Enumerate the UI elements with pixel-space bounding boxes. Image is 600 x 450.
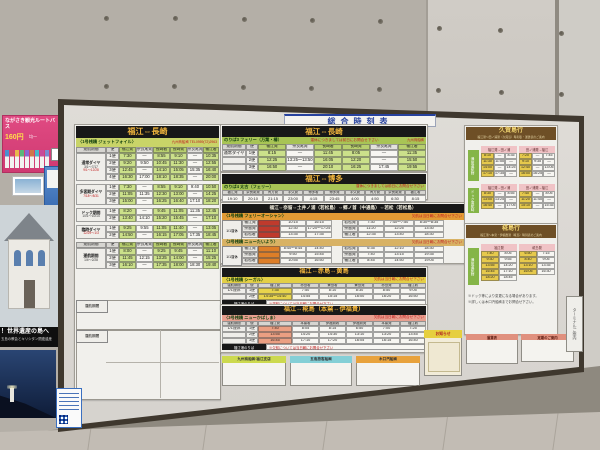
time-cell: 9:45 xyxy=(170,248,187,255)
bus-poster-mini-card xyxy=(20,150,24,168)
right-table-header: 福江発→田ノ浦 xyxy=(481,184,517,191)
time-cell: 10:50 xyxy=(203,184,219,191)
formtie-hole xyxy=(437,26,442,31)
time-cell: 8:55 xyxy=(153,153,170,160)
time-cell: 13:05 xyxy=(203,225,219,232)
time-cell: 8:05 xyxy=(342,150,370,157)
time-cell: 9:40 xyxy=(187,184,203,191)
time-cell: 8:45 xyxy=(358,258,384,264)
time-cell: 13:25 xyxy=(153,255,170,262)
time-cell: — xyxy=(136,262,153,269)
right-table-header: 田ノ浦発→福江 xyxy=(519,146,555,153)
pier-strip: 〈2号桟橋 ニューたいよう〉欠航は当日朝にお問合せ下さい xyxy=(222,239,464,246)
formtie-hole xyxy=(436,88,441,93)
pier-label: 〈1号桟橋 ジェットフォイル〉 xyxy=(78,140,136,144)
time-cell: 18:20 xyxy=(481,275,499,281)
time-cell: 18:30 xyxy=(414,232,444,238)
formtie-hole xyxy=(559,31,564,36)
bus-poster-mini-card xyxy=(30,150,34,168)
time-cell: 15:35 xyxy=(187,167,203,174)
formtie-hole xyxy=(559,92,564,97)
time-cell: 18:00 xyxy=(170,262,187,269)
cliff xyxy=(0,386,56,418)
time-cell: 8:20 xyxy=(119,208,136,215)
time-cell: 11:35 xyxy=(398,150,426,157)
time-cell: 15:25 xyxy=(203,255,219,262)
time-cell: 10:35 xyxy=(203,153,219,160)
time-cell: — xyxy=(505,171,517,177)
photo-card-image xyxy=(15,179,41,193)
church-window xyxy=(14,250,21,266)
bus-poster-price: 160円 xyxy=(5,132,24,142)
formtie-hole xyxy=(241,85,246,90)
warning-note: 運休につきましては前日にお問合せ下さい xyxy=(356,185,424,189)
time-cell: 14:25 xyxy=(203,191,219,198)
formtie-hole xyxy=(498,28,503,33)
time-cell: 2便 xyxy=(106,255,119,262)
time-cell: 12:45 xyxy=(119,167,136,174)
time-cell: 13:35 xyxy=(280,232,306,238)
formtie-hole xyxy=(242,17,247,22)
bus-poster-mini-card xyxy=(25,150,29,168)
time-cell: 17:45 xyxy=(370,164,398,171)
time-cell: 14:50 xyxy=(384,258,414,264)
time-cell: 13:00 xyxy=(170,191,187,198)
time-cell: 23:00 xyxy=(283,195,303,202)
time-cell: 18:30 xyxy=(187,262,203,269)
time-cell: 2便 xyxy=(106,215,119,222)
time-cell: 16:15 xyxy=(153,232,170,239)
time-cell: 通常ダイヤ xyxy=(222,150,246,157)
period-label-cell: 通常ダイヤ3/1～7/179/1～12/28 xyxy=(76,153,106,181)
time-cell: 12:55 xyxy=(203,160,219,167)
warning-note: 運休につきましては前日にお問合せ下さい xyxy=(310,139,378,143)
pier-label: 〈1号桟橋 フェリーオーシャン〉 xyxy=(224,214,286,218)
time-cell: 16:40 xyxy=(170,198,187,205)
time-cell: 3便 xyxy=(106,167,119,174)
time-cell: 14:00 xyxy=(170,255,187,262)
time-cell xyxy=(222,157,246,164)
formtie-hole xyxy=(172,84,177,89)
time-cell: — xyxy=(187,191,203,198)
right-table-header: 椛島発 xyxy=(519,244,555,251)
route-header-bar: 福江⇔長崎 xyxy=(222,126,426,137)
time-cell: 17:35 xyxy=(187,232,203,239)
period-label-cell: 多客期ダイヤ7/18～8/31 xyxy=(76,184,106,205)
time-cell: 8:15 xyxy=(258,150,286,157)
heritage-band-text: ！世界遺産の島へ xyxy=(1,329,57,336)
time-cell: 4:15 xyxy=(303,195,324,202)
time-cell: 15:10 xyxy=(519,203,532,209)
time-cell: 17:35 xyxy=(153,262,170,269)
notice-box-header: お知らせ xyxy=(424,330,462,338)
time-cell: 11:35 xyxy=(136,191,153,198)
time-cell: 8:55 xyxy=(153,184,170,191)
time-cell: 10:55 xyxy=(280,258,306,264)
time-cell: 11:40 xyxy=(170,225,187,232)
time-cell: — xyxy=(187,153,203,160)
right-poster-title: 久賀島行 xyxy=(499,128,523,135)
warning-note: 欠航は当日朝にお問合せ下さい xyxy=(412,215,462,219)
time-cell: 12:35 xyxy=(358,232,384,238)
time-cell: 17:00 xyxy=(136,174,153,181)
time-cell: 19:10 xyxy=(222,195,243,202)
time-cell: 17:10 xyxy=(187,198,203,205)
time-cell: 12:25 xyxy=(258,157,286,164)
formtie-hole xyxy=(499,90,504,95)
route-header-bar: 福江⇔赤島⇔黄島 xyxy=(222,268,426,277)
time-cell: — xyxy=(532,203,543,209)
time-cell: 15:50 xyxy=(398,157,426,164)
time-cell: 3便 xyxy=(106,198,119,205)
time-cell: — xyxy=(543,171,555,177)
time-cell: 11:10 xyxy=(203,248,219,255)
church-roof xyxy=(4,213,54,241)
time-cell: 15:35 xyxy=(543,203,555,209)
bus-poster-mini-card xyxy=(10,150,14,168)
warning-note: 欠航は当日朝にお問合せ下さい xyxy=(374,278,424,282)
time-cell xyxy=(258,232,280,238)
time-cell: 18:45 xyxy=(499,275,517,281)
time-cell: 14:50 xyxy=(119,232,136,239)
foot-label: 福江港のりば xyxy=(222,344,266,350)
time-cell: 15:05 xyxy=(170,167,187,174)
contact-label: 九州商船㈱ xyxy=(407,139,424,142)
time-cell: 1便 xyxy=(106,153,119,160)
notice-box-paper xyxy=(428,342,460,372)
time-cell: 19:40 xyxy=(203,262,219,269)
pier-label: 〈3号桟橋 ニューかばしま〉 xyxy=(224,316,278,320)
time-cell: — xyxy=(187,160,203,167)
time-cell: 17:10 xyxy=(203,215,219,222)
contact-label: 九州商船㈱ TEL0959(72)2963 xyxy=(172,141,217,144)
time-cell: 11:45 xyxy=(314,150,342,157)
time-cell: 11:05 xyxy=(119,191,136,198)
right-poster-header: 久賀島行福江港～田ノ浦港（久賀島）時刻表・運賃表のご案内 xyxy=(466,127,556,140)
church-facade xyxy=(8,239,50,309)
time-cell: 16:50 xyxy=(258,164,286,171)
time-cell: 12:15 xyxy=(136,255,153,262)
blank-table-label: 運航期間 xyxy=(76,330,108,343)
time-cell: 17:05 xyxy=(505,203,517,209)
time-cell: 1便 xyxy=(106,184,119,191)
time-cell: 11:30 xyxy=(170,160,187,167)
time-cell: 9:25 xyxy=(119,225,136,232)
church-window xyxy=(26,250,33,266)
suspension-label: 1/1運休 xyxy=(222,246,242,266)
note-line: ※詳しくは木口汽船㈱までお問合せ下さい。 xyxy=(468,298,556,304)
heritage-band-sub: 五島の教会とキリシタン関連遺産 xyxy=(1,336,57,341)
period-note-red: 9/1～12/28 xyxy=(83,169,99,172)
pier-strip: のりば3 フェリー（万葉・椿）運休につきましては前日にお問合せ下さい九州商船㈱ xyxy=(222,137,426,144)
time-cell: 2便 xyxy=(106,191,119,198)
time-cell: 8:15 xyxy=(405,195,426,202)
time-cell: 15:45 xyxy=(170,215,187,222)
formtie-hole xyxy=(309,86,314,91)
bus-poster-mini-card xyxy=(35,150,39,168)
formtie-hole xyxy=(377,87,382,92)
time-cell: — xyxy=(136,167,153,174)
right-poster-subtitle: 福江港～本窯・伊福貴港（椛島）時刻表のご案内 xyxy=(480,233,542,237)
time-cell: 7:30 xyxy=(119,184,136,191)
time-cell: 2便 xyxy=(106,160,119,167)
time-cell: 18:35 xyxy=(170,174,187,181)
notice-card-qr xyxy=(59,415,68,424)
time-cell: 9:10 xyxy=(170,184,187,191)
time-cell: — xyxy=(187,248,203,255)
formtie-hole xyxy=(104,84,109,89)
lighthouse xyxy=(10,388,14,402)
time-cell: — xyxy=(370,157,398,164)
time-cell: — xyxy=(136,232,153,239)
time-cell xyxy=(258,258,280,264)
time-cell: 2便 xyxy=(246,157,258,164)
time-cell: 12:30 xyxy=(153,191,170,198)
time-cell: 20:10 xyxy=(243,195,263,202)
time-cell: 18:10 xyxy=(153,174,170,181)
time-cell: 16:40 xyxy=(203,167,219,174)
time-cell: 13:40 xyxy=(119,215,136,222)
time-cell: 4:00 xyxy=(345,195,365,202)
warning-note: 欠航は当日朝にお問合せ下さい xyxy=(374,316,424,320)
vertical-label: ドック運航時 xyxy=(468,188,479,213)
period-note-red: 12/29～1/3 xyxy=(83,232,99,235)
time-cell: — xyxy=(136,208,153,215)
time-cell: 4:50 xyxy=(365,195,385,202)
time-cell: 16:30 xyxy=(119,174,136,181)
time-cell: 13:25～13:50 xyxy=(286,157,314,164)
time-cell: 13:40 xyxy=(384,232,414,238)
bus-poster-title: ながさき観光ルートバス xyxy=(5,119,59,131)
right-table-header: 田ノ浦発→福江 xyxy=(519,184,555,191)
pier-label: 〈2号桟橋 ニューたいよう〉 xyxy=(224,240,278,244)
period-note-red: 7/18～8/31 xyxy=(83,195,99,198)
time-cell: 福江着 xyxy=(342,258,358,264)
blank-table-label: 運航期間 xyxy=(76,300,108,313)
time-cell: — xyxy=(136,184,153,191)
time-cell: 11:05 xyxy=(153,225,170,232)
time-cell: 14:10 xyxy=(153,167,170,174)
pier-label: のりば4 太古（フェリー） xyxy=(224,185,274,189)
suspension-label: 1/1運休 xyxy=(222,220,242,240)
formtie-hole xyxy=(173,16,178,21)
time-cell: 17:35 xyxy=(306,232,332,238)
photo-card xyxy=(12,176,44,196)
bus-route-poster: ながさき観光ルートバス 160円 均一 xyxy=(2,115,60,173)
route-header-bar: 福江⇔椛島（本窯⇔伊福貴） xyxy=(222,306,426,315)
ferry-terminal-photo: ながさき観光ルートバス 160円 均一 ！世界遺産の島へ 五島の教会とキリシタン… xyxy=(0,0,600,450)
route-header-bar: 福江⇔長崎 xyxy=(76,126,219,138)
time-cell: 1便 xyxy=(106,208,119,215)
period-label-cell: 運航期間1/4～2/28 xyxy=(76,248,106,269)
vertical-label: 通常運航時 xyxy=(468,150,479,181)
company-box-header: 九州商船㈱ 福江支店 xyxy=(222,356,286,363)
time-cell: 11:45 xyxy=(119,255,136,262)
time-cell: — xyxy=(187,215,203,222)
time-cell: 4便 xyxy=(106,174,119,181)
time-cell: 12:20 xyxy=(342,157,370,164)
time-cell: — xyxy=(187,225,203,232)
notice-card-lines xyxy=(59,393,79,411)
route-header-bar: 福江⇔博多 xyxy=(222,174,426,184)
time-cell: 9:20 xyxy=(119,160,136,167)
time-cell: — xyxy=(494,203,505,209)
formtie-hole xyxy=(378,19,383,24)
time-cell: 7:30 xyxy=(119,153,136,160)
bus-poster-mini-card xyxy=(5,150,9,168)
time-cell: 14:10 xyxy=(136,215,153,222)
warning-note: 欠航は当日朝にお問合せ下さい xyxy=(412,241,462,245)
right-bottom-box-header: 運賃表 xyxy=(466,334,518,340)
time-cell: 8:00 xyxy=(119,248,136,255)
vertical-label: 通常運航時 xyxy=(468,248,479,285)
right-poster-header: 椛島行福江港～本窯・伊福貴港（椛島）時刻表のご案内 xyxy=(466,225,556,238)
lighthouse-light xyxy=(7,385,17,389)
time-cell: 17:10 xyxy=(481,171,494,177)
wall-notice-text: ターミナルご案内 xyxy=(572,308,578,340)
time-cell: 12:45 xyxy=(203,208,219,215)
time-cell: 9:10 xyxy=(170,153,187,160)
time-cell: 9:50 xyxy=(136,160,153,167)
right-table-header: 福江発→田ノ浦 xyxy=(481,146,517,153)
period-note: 1/4～2/28 xyxy=(84,259,98,262)
right-poster-subtitle: 福江港～田ノ浦港（久賀島）時刻表・運賃表のご案内 xyxy=(477,135,544,139)
time-cell: 16:05 xyxy=(314,157,342,164)
time-cell: 若松着 xyxy=(242,232,258,238)
time-cell: 福江着 xyxy=(342,232,358,238)
foot-note: ※欠航については当日朝にお問合せ下さい xyxy=(266,344,426,350)
right-poster-title: 椛島行 xyxy=(502,226,520,233)
time-cell: — xyxy=(136,153,153,160)
time-cell: 16:30 xyxy=(537,269,555,275)
time-cell: 15:20 xyxy=(153,215,170,222)
time-cell: — xyxy=(286,164,314,171)
time-cell: 9:45 xyxy=(153,208,170,215)
floor-joint xyxy=(552,410,559,450)
time-cell: 16:40 xyxy=(481,203,494,209)
period-label-cell: ドック期間10/1～10/14 xyxy=(76,208,106,222)
lighthouse-poster xyxy=(0,350,56,418)
time-cell: 20:10 xyxy=(314,164,342,171)
time-cell: 10:45 xyxy=(153,160,170,167)
time-cell: 9:25 xyxy=(153,248,170,255)
company-box-header: 五島旅客船㈱ xyxy=(290,356,352,363)
time-cell: — xyxy=(187,255,203,262)
notice-card xyxy=(56,388,82,428)
route-header-bar: 福江⇔奈留⇔土井ノ浦（若松島）⇔郷ノ首（中通島）⇔若松（若松島） xyxy=(222,204,464,213)
time-cell: 1便 xyxy=(246,150,258,157)
company-box-header: 木口汽船㈱ xyxy=(356,356,420,363)
time-cell: 19:55 xyxy=(398,164,426,171)
church-poster: ！世界遺産の島へ 五島の教会とキリシタン関連遺産 xyxy=(0,205,58,347)
right-table-header: 福江発 xyxy=(481,244,517,251)
time-cell xyxy=(222,164,246,171)
heritage-band: ！世界遺産の島へ 五島の教会とキリシタン関連遺産 xyxy=(0,327,58,347)
time-cell: 16:25 xyxy=(153,198,170,205)
time-cell: 2便 xyxy=(106,232,119,239)
time-cell: — xyxy=(187,174,203,181)
blank-table-divider xyxy=(106,362,219,363)
time-cell: 18:45 xyxy=(203,232,219,239)
time-cell: 1便 xyxy=(106,248,119,255)
time-cell: 9:55 xyxy=(136,225,153,232)
time-cell: 3便 xyxy=(106,262,119,269)
time-cell: 3便 xyxy=(246,164,258,171)
time-cell: 16:25 xyxy=(342,164,370,171)
time-cell: — xyxy=(136,248,153,255)
time-cell: 16:05 xyxy=(519,269,537,275)
blank-table-divider xyxy=(160,330,161,398)
time-cell: 17:05 xyxy=(170,232,187,239)
time-cell: 11:05 xyxy=(170,208,187,215)
pier-strip: 〈1号桟橋 ジェットフォイル〉九州商船㈱ TEL0959(72)2963 xyxy=(76,138,219,147)
time-cell: 21:15 xyxy=(263,195,283,202)
time-cell: 6:30 xyxy=(385,195,405,202)
period-note: 10/1～10/14 xyxy=(82,215,99,218)
time-cell: 11:35 xyxy=(187,208,203,215)
formtie-hole xyxy=(104,16,109,21)
period-label-cell: 臨時ダイヤ12/29～1/3 xyxy=(76,225,106,239)
bus-poster-note: 均一 xyxy=(29,134,37,140)
time-cell: 18:20 xyxy=(203,198,219,205)
time-cell: 1便 xyxy=(106,225,119,232)
time-cell: — xyxy=(136,198,153,205)
wall-notice-vertical: ターミナルご案内 xyxy=(566,296,583,352)
time-cell: 19:05 xyxy=(414,258,444,264)
pier-label: のりば3 フェリー（万葉・椿） xyxy=(224,138,282,142)
church-window xyxy=(38,250,45,266)
time-cell: 23:45 xyxy=(324,195,345,202)
time-cell: 16:10 xyxy=(119,262,136,269)
bus-poster-mini-card xyxy=(15,150,19,168)
pier-strip: 〈1号桟橋 フェリーオーシャン〉欠航は当日朝にお問合せ下さい xyxy=(222,213,464,220)
time-cell: 若松着 xyxy=(242,258,258,264)
time-cell: 15:00 xyxy=(119,198,136,205)
time-cell: — xyxy=(370,150,398,157)
time-cell: 16:25 xyxy=(532,171,543,177)
church-door xyxy=(24,280,35,308)
time-cell: — xyxy=(286,150,314,157)
pier-label: 〈1号桟橋 シーガル〉 xyxy=(224,278,265,282)
time-cell: 16:00 xyxy=(519,171,532,177)
time-cell: 20:00 xyxy=(203,174,219,181)
time-cell: 17:35 xyxy=(494,171,505,177)
formtie-hole xyxy=(310,18,315,23)
time-cell: 16:50 xyxy=(306,258,332,264)
